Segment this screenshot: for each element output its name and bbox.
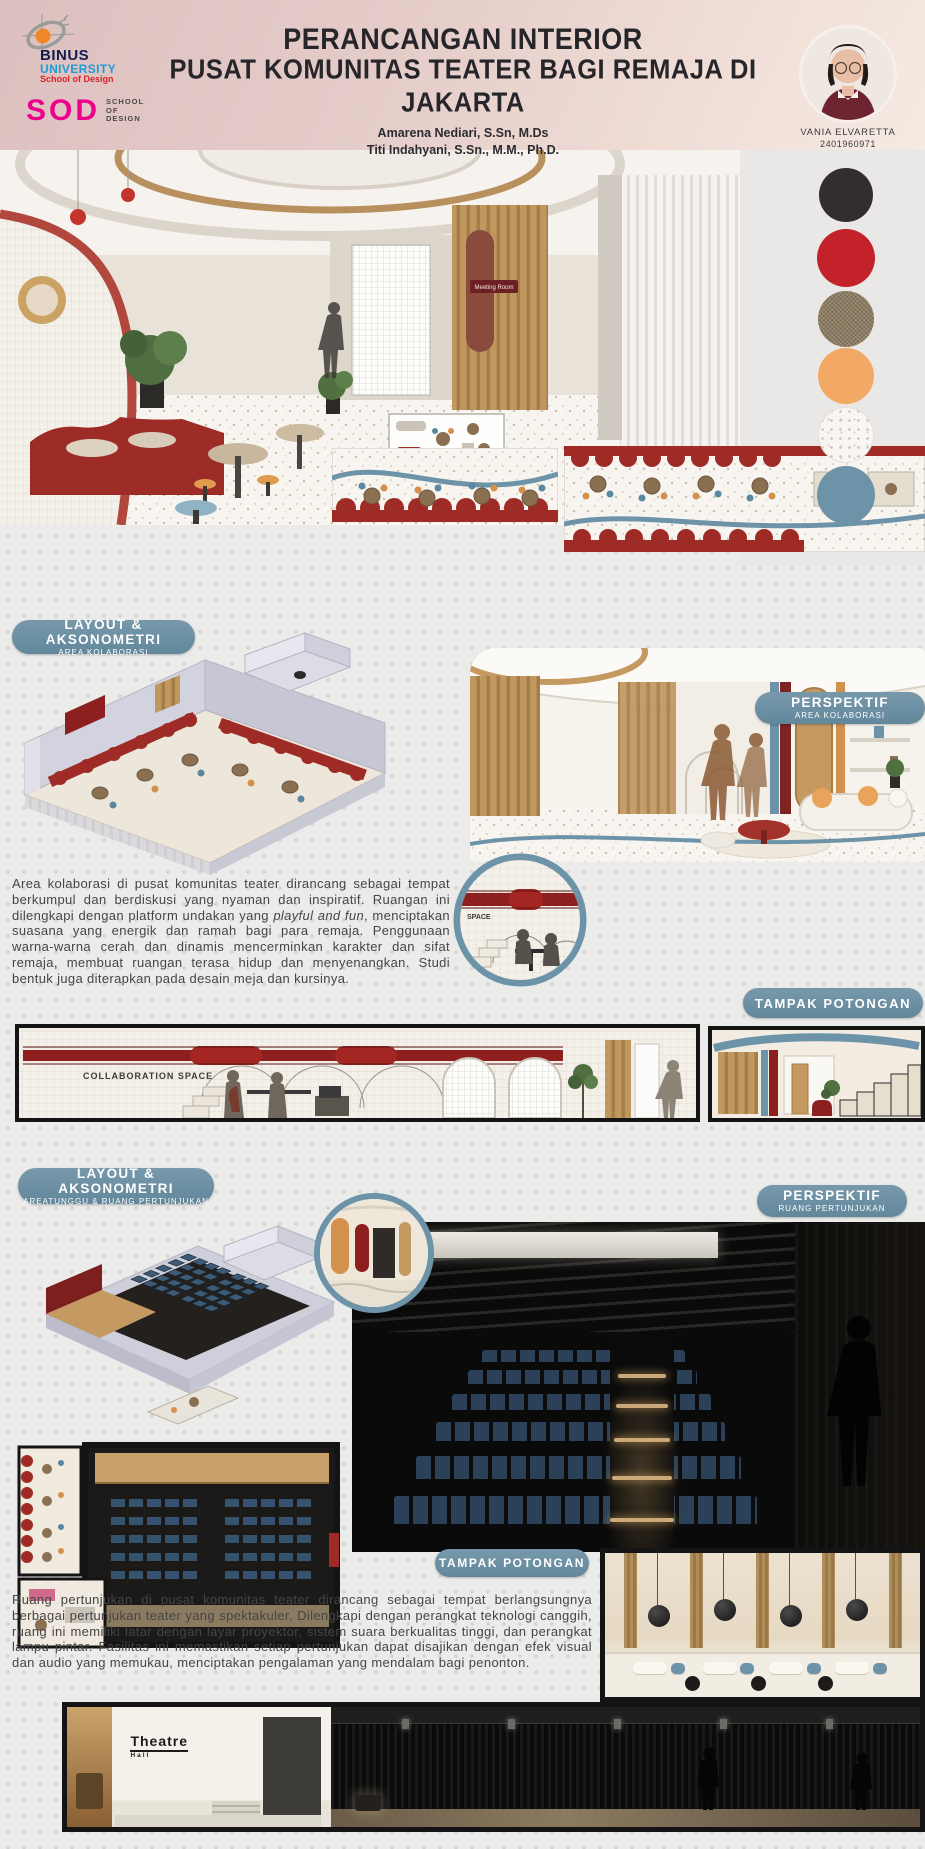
stage-silhouette (849, 1752, 875, 1810)
collab-perspective-pill: PERSPEKTIF AREA KOLABORASI (755, 692, 925, 724)
student-name: VANIA ELVARETTA (755, 127, 925, 138)
bench-cushion-blue (671, 1663, 685, 1674)
bench-cushion (835, 1662, 869, 1674)
wood-pillar (690, 1553, 703, 1648)
stage-light (508, 1719, 515, 1729)
wood-pillar (822, 1553, 835, 1648)
theater-step-light (610, 1518, 674, 1522)
binus-school-of-design: School of Design (40, 75, 116, 84)
theater-layout-pill-title: LAYOUT & AKSONOMETRI (18, 1166, 214, 1197)
theatre-sign: Theatre Hall (130, 1733, 188, 1759)
collab-section-pill: TAMPAK POTONGAN (743, 988, 923, 1018)
collab-layout-pill-subtitle: AREA KOLABORASI (58, 648, 148, 658)
theater-perspective-pill: PERSPEKTIF RUANG PERTUNJUKAN (757, 1185, 907, 1217)
pendant-lamp (780, 1605, 802, 1627)
student-block: VANIA ELVARETTA 2401960971 (755, 127, 925, 149)
sod-logo: SOD SCHOOL OF DESIGN (26, 96, 144, 126)
collab-perspective-pill-title: PERSPEKTIF (791, 695, 889, 711)
collab-perspective-pill-subtitle: AREA KOLABORASI (795, 711, 885, 721)
swatch-warm-orange (818, 348, 874, 404)
bench-cushion (769, 1662, 803, 1674)
theater-layout-pill-subtitle: AREATUNGGU & RUANG PERTUNJUKAN (23, 1197, 209, 1207)
stage-floor (331, 1809, 920, 1827)
stage-light (402, 1719, 409, 1729)
theater-side-wall (795, 1222, 925, 1552)
theater-step-light (616, 1404, 668, 1408)
wood-pillar (889, 1553, 902, 1648)
theater-step-light (612, 1476, 672, 1480)
author-1: Amarena Nediari, S.Sn, M.Ds (150, 125, 776, 142)
title-line-2: PUSAT KOMUNITAS TEATER BAGI REMAJA DI JA… (150, 53, 776, 119)
binus-wordmark: BINUS UNIVERSITY School of Design (40, 48, 116, 84)
collab-layout-pill-title: LAYOUT & AKSONOMETRI (12, 617, 195, 648)
theatre-sign-title: Theatre (130, 1733, 188, 1752)
theatre-sign-subtitle: Hall (130, 1752, 188, 1759)
swatch-steel-blue (817, 466, 875, 524)
lamp-cord (789, 1553, 790, 1608)
poster-canvas: Meeting Room BINUS UNIVERSITY School of … (0, 0, 925, 1849)
svg-text:SPACE: SPACE (467, 914, 491, 921)
floorplan-strip-left (332, 448, 558, 522)
theater-corridor-inset (313, 1192, 435, 1314)
theater-layout-pill: LAYOUT & AKSONOMETRI AREATUNGGU & RUANG … (18, 1168, 214, 1204)
sod-acronym: SOD (26, 96, 100, 126)
collab-detail-inset: SPACE (453, 853, 587, 987)
wood-pillar (624, 1553, 637, 1648)
lamp-cord (657, 1553, 658, 1608)
waiting-bench (605, 1652, 920, 1697)
pendant-lamp (714, 1599, 736, 1621)
theater-aisle-glow (602, 1362, 682, 1552)
swatch-charcoal-black (819, 168, 873, 222)
sod-wordmark: SCHOOL OF DESIGN (106, 98, 144, 124)
header-band: BINUS UNIVERSITY School of Design SOD SC… (0, 0, 925, 150)
bench-cushion-blue (807, 1663, 821, 1674)
student-id: 2401960971 (755, 139, 925, 149)
round-side-table (818, 1676, 833, 1691)
theater-step-light (618, 1374, 666, 1378)
bench-cushion-blue (873, 1663, 887, 1674)
binus-name: BINUS (40, 48, 116, 63)
theater-person-silhouette (823, 1312, 893, 1492)
swatch-taupe-linen (818, 291, 874, 347)
svg-text:Meeting Room: Meeting Room (474, 285, 513, 291)
theater-section-drawing: Theatre Hall (62, 1702, 925, 1832)
pendant-lamp (846, 1599, 868, 1621)
swatch-theater-red (817, 229, 875, 287)
collab-layout-pill: LAYOUT & AKSONOMETRI AREA KOLABORASI (12, 620, 195, 654)
waiting-area-render (600, 1548, 925, 1702)
theater-paragraph: Ruang pertunjukan di pusat komunitas tea… (12, 1592, 592, 1671)
author-2: Titi Indahyani, S.Sn., M.M., Ph.D. (150, 142, 776, 159)
theater-perspective-pill-title: PERSPEKTIF (783, 1188, 881, 1204)
student-photo-avatar (799, 25, 897, 123)
stage-projector (355, 1795, 381, 1811)
theater-step-light (614, 1438, 670, 1442)
lamp-cord (723, 1553, 724, 1602)
theater-seat-row (416, 1456, 741, 1479)
bench-cushion (703, 1662, 737, 1674)
theater-section-pill: TAMPAK POTONGAN (435, 1549, 589, 1577)
theater-perspective-pill-subtitle: RUANG PERTUNJUKAN (778, 1204, 885, 1214)
pendant-lamp (648, 1605, 670, 1627)
bench-cushion-blue (740, 1663, 754, 1674)
collab-axonometric-drawing (5, 545, 400, 875)
swatch-white-terrazzo (818, 407, 874, 463)
meeting-room-sign: Meeting Room (470, 280, 518, 293)
collab-paragraph: Area kolaborasi di pusat komunitas teate… (12, 876, 450, 987)
theater-seat-row (394, 1496, 757, 1524)
stage-light (826, 1719, 833, 1729)
wood-pillar (756, 1553, 769, 1648)
collab-elevation-wide: COLLABORATION SPACE (15, 1024, 700, 1122)
bench-cushion (633, 1662, 667, 1674)
stage-house (331, 1707, 920, 1827)
collab-perspective-render (470, 648, 925, 862)
theater-lobby: Theatre Hall (67, 1707, 331, 1827)
collab-elevation-stair (708, 1026, 925, 1122)
lamp-cord (855, 1553, 856, 1602)
stage-light (614, 1719, 621, 1729)
stage-silhouette (696, 1746, 722, 1810)
lobby-warm-room (67, 1707, 112, 1827)
theater-axonometric-drawing (28, 1202, 346, 1434)
poster-title-block: PERANCANGAN INTERIOR PUSAT KOMUNITAS TEA… (150, 24, 776, 159)
stage-light (720, 1719, 727, 1729)
theater-perspective-render (352, 1222, 925, 1552)
lobby-door (263, 1717, 321, 1818)
svg-text:COLLABORATION SPACE: COLLABORATION SPACE (83, 1071, 213, 1081)
authors-block: Amarena Nediari, S.Sn, M.Ds Titi Indahya… (150, 125, 776, 159)
